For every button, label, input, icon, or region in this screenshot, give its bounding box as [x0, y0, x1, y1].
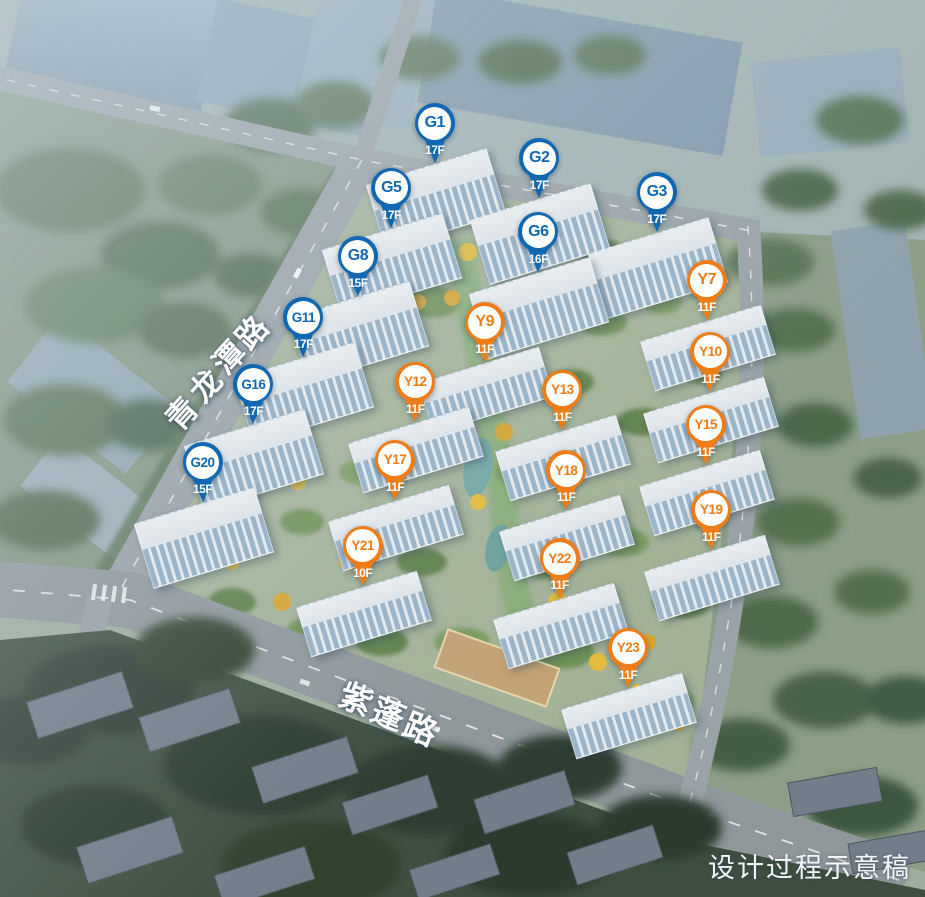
- pin-floor-count: 17F: [413, 143, 457, 157]
- pin-building-id: G20: [186, 446, 219, 479]
- pin-floor-count: 15F: [336, 276, 380, 290]
- pin-head: G1: [415, 103, 455, 143]
- pin-building-id: Y18: [550, 454, 583, 487]
- building-pin-Y17[interactable]: Y1711F: [373, 440, 417, 500]
- building-pin-Y18[interactable]: Y1811F: [544, 450, 588, 510]
- pin-head: Y23: [608, 628, 648, 668]
- pin-floor-count: 11F: [538, 578, 582, 592]
- building-pin-G11[interactable]: G1117F: [281, 297, 325, 357]
- pin-floor-count: 11F: [463, 342, 507, 356]
- pin-floor-count: 11F: [685, 300, 729, 314]
- pin-building-id: Y17: [378, 443, 411, 476]
- site-plan: 青龙潭路紫蓬路 G117FG217FG317FG517FG616FG815FG1…: [0, 0, 925, 897]
- pin-floor-count: 17F: [369, 208, 413, 222]
- pin-floor-count: 11F: [393, 402, 437, 416]
- building-pin-G20[interactable]: G2015F: [181, 442, 225, 502]
- pin-head: G2: [519, 138, 559, 178]
- building-pin-G5[interactable]: G517F: [369, 168, 413, 228]
- pin-building-id: Y7: [690, 264, 723, 297]
- pin-head: G11: [283, 297, 323, 337]
- pin-head: Y21: [343, 526, 383, 566]
- pin-floor-count: 11F: [540, 410, 584, 424]
- pin-building-id: G1: [418, 107, 451, 140]
- building-pin-G3[interactable]: G317F: [635, 172, 679, 232]
- pin-building-id: G6: [522, 215, 555, 248]
- pin-head: G8: [338, 236, 378, 276]
- pin-head: Y13: [542, 370, 582, 410]
- pin-building-id: G5: [375, 171, 408, 204]
- pin-building-id: Y12: [399, 365, 432, 398]
- building-pin-G2[interactable]: G217F: [517, 138, 561, 198]
- pin-floor-count: 17F: [231, 404, 275, 418]
- building-pin-G1[interactable]: G117F: [413, 103, 457, 163]
- pin-head: Y15: [686, 405, 726, 445]
- pin-head: Y12: [395, 362, 435, 402]
- pin-head: Y17: [375, 440, 415, 480]
- pin-building-id: G2: [523, 142, 556, 175]
- pin-head: Y22: [540, 538, 580, 578]
- building-pin-Y9[interactable]: Y911F: [463, 302, 507, 362]
- pin-floor-count: 17F: [517, 178, 561, 192]
- pin-head: Y19: [691, 490, 731, 530]
- pin-building-id: G16: [237, 368, 270, 401]
- pin-building-id: G8: [341, 240, 374, 273]
- building-pin-G16[interactable]: G1617F: [231, 364, 275, 424]
- pin-head: G5: [371, 168, 411, 208]
- building-pin-Y22[interactable]: Y2211F: [538, 538, 582, 598]
- pin-building-id: Y23: [612, 631, 645, 664]
- pin-head: Y10: [690, 332, 730, 372]
- pin-floor-count: 11F: [688, 372, 732, 386]
- building-pin-Y23[interactable]: Y2311F: [606, 628, 650, 688]
- pin-head: Y7: [687, 260, 727, 300]
- pin-floor-count: 11F: [373, 480, 417, 494]
- building-pin-G8[interactable]: G815F: [336, 236, 380, 296]
- pin-head: G6: [518, 212, 558, 252]
- pin-building-id: Y21: [346, 529, 379, 562]
- pin-floor-count: 10F: [341, 566, 385, 580]
- building-pin-Y12[interactable]: Y1211F: [393, 362, 437, 422]
- pin-head: G20: [183, 442, 223, 482]
- pin-head: G3: [637, 172, 677, 212]
- building-pin-Y21[interactable]: Y2110F: [341, 526, 385, 586]
- watermark: 设计过程示意稿: [708, 846, 911, 885]
- pin-head: Y18: [546, 450, 586, 490]
- building-pin-G6[interactable]: G616F: [516, 212, 560, 272]
- pin-building-id: Y9: [468, 306, 501, 339]
- building-pin-Y19[interactable]: Y1911F: [689, 490, 733, 550]
- pin-floor-count: 11F: [684, 445, 728, 459]
- pin-building-id: G3: [640, 176, 673, 209]
- pin-building-id: G11: [287, 301, 320, 334]
- pin-building-id: Y10: [694, 335, 727, 368]
- pin-floor-count: 17F: [635, 212, 679, 226]
- pin-floor-count: 16F: [516, 252, 560, 266]
- pin-floor-count: 11F: [689, 530, 733, 544]
- pin-floor-count: 11F: [544, 490, 588, 504]
- building-pin-Y10[interactable]: Y1011F: [688, 332, 732, 392]
- building-pin-Y13[interactable]: Y1311F: [540, 370, 584, 430]
- building-pin-Y7[interactable]: Y711F: [685, 260, 729, 320]
- pin-head: G16: [233, 364, 273, 404]
- pin-floor-count: 11F: [606, 668, 650, 682]
- pin-building-id: Y13: [546, 373, 579, 406]
- pin-building-id: Y19: [695, 493, 728, 526]
- pin-floor-count: 15F: [181, 482, 225, 496]
- building-pins: G117FG217FG317FG517FG616FG815FG1117FG161…: [0, 0, 925, 897]
- pin-head: Y9: [465, 302, 505, 342]
- pin-floor-count: 17F: [281, 337, 325, 351]
- pin-building-id: Y15: [689, 408, 722, 441]
- building-pin-Y15[interactable]: Y1511F: [684, 405, 728, 465]
- pin-building-id: Y22: [543, 542, 576, 575]
